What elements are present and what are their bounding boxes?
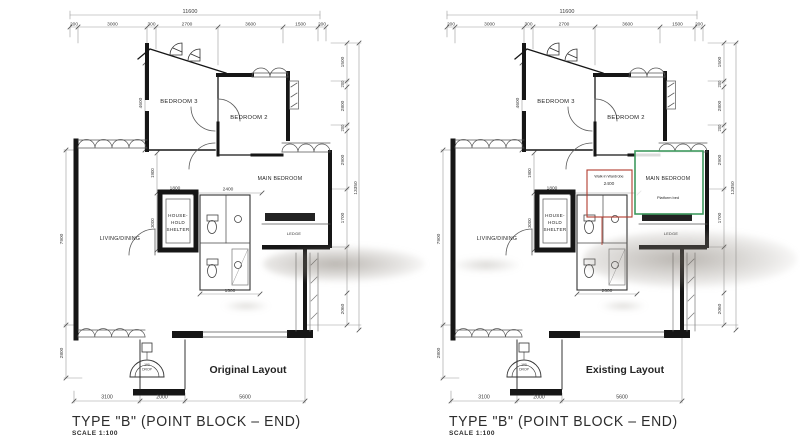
floor-plan-existing: Walk-in Wardrobe Platform bed 11600 200 …: [425, 3, 743, 415]
dim-bottom: 5600: [616, 395, 628, 401]
dim-right: 1700: [717, 212, 723, 223]
dim-overall-height: 13350: [353, 181, 359, 195]
room-label-ledge: LEDGE: [287, 232, 302, 236]
dim-top: 200: [70, 22, 78, 28]
dim-right: 2800: [340, 100, 346, 111]
plan-scale-existing: SCALE 1:100: [449, 430, 495, 437]
drop-note: DROP: [142, 368, 153, 372]
existing-annotations: Walk-in Wardrobe Platform bed: [587, 151, 703, 245]
platform-bed-label: Platform bed: [657, 195, 679, 200]
dim-right: 1500: [717, 56, 723, 67]
floorplan-canvas: 11600 200 3000 300 2700 3600 1500 200 15…: [0, 0, 800, 443]
dim-bedroom3-height: 4600: [138, 97, 144, 108]
platform-bed-outline: [635, 151, 703, 214]
dim-right: 200: [717, 80, 722, 88]
room-label-shelter: HOUSE-: [545, 213, 565, 218]
dim-top: 300: [147, 22, 155, 28]
dim-top: 200: [447, 22, 455, 28]
floor-plan-existing-svg: Walk-in Wardrobe Platform bed 11600 200 …: [425, 3, 743, 415]
dim-right: 1700: [340, 212, 346, 223]
dim-top: 300: [524, 22, 532, 28]
dim-top: 2700: [559, 22, 570, 28]
plan-scale-original: SCALE 1:100: [72, 430, 118, 437]
dim-main-bedroom: 2400: [604, 181, 615, 187]
dim-right: 2060: [717, 303, 723, 314]
dim-shelter-width: 1800: [547, 186, 558, 192]
room-label-shelter: SHELTER: [544, 227, 567, 232]
dim-shelter-height: 3000: [150, 218, 155, 228]
dim-right: 2800: [717, 100, 723, 111]
dim-top: 1500: [672, 22, 683, 28]
room-label-main-bedroom: MAIN BEDROOM: [258, 176, 303, 182]
dim-kitchen: 1500: [225, 288, 236, 294]
room-label-bedroom3: BEDROOM 3: [537, 99, 575, 105]
dim-top: 200: [695, 22, 703, 28]
dim-bedroom3-height: 4600: [515, 97, 521, 108]
dim-bottom: 5600: [239, 395, 251, 401]
dim-top: 3600: [622, 22, 633, 28]
drop-note: DROP: [519, 368, 530, 372]
dim-shelter-width: 1800: [170, 186, 181, 192]
dim-right: 2060: [340, 303, 346, 314]
dim-left-lower: 2800: [59, 347, 65, 358]
dim-right: 200: [717, 124, 722, 132]
walk-in-wardrobe-label: Walk-in Wardrobe: [594, 175, 623, 179]
floor-plan-original-svg: 11600 200 3000 300 2700 3600 1500 200 15…: [48, 3, 366, 415]
room-label-shelter: HOUSE-: [168, 213, 188, 218]
layout-label-existing: Existing Layout: [586, 364, 665, 376]
room-label-ledge: LEDGE: [664, 232, 679, 236]
drop-note: 100: [144, 363, 150, 367]
room-label-living: LIVING/DINING: [477, 236, 518, 242]
room-label-shelter: HOLD: [171, 220, 185, 225]
dim-kitchen: 2600: [602, 288, 613, 294]
dim-bottom: 2000: [156, 395, 168, 401]
room-label-shelter: HOLD: [548, 220, 562, 225]
dim-main-bedroom: 2400: [223, 187, 234, 193]
dim-bottom: 2000: [533, 395, 545, 401]
layout-label-original: Original Layout: [209, 364, 287, 376]
dim-shelter-height: 3000: [527, 218, 532, 228]
dim-left-lower: 2800: [436, 347, 442, 358]
dim-top: 1500: [295, 22, 306, 28]
dim-bottom: 3100: [101, 395, 113, 401]
room-label-main-bedroom: MAIN BEDROOM: [646, 176, 691, 182]
dim-hall: 1900: [150, 168, 155, 178]
room-label-bedroom2: BEDROOM 2: [607, 115, 645, 121]
dim-right: 2900: [717, 154, 723, 165]
floor-plan-original: 11600 200 3000 300 2700 3600 1500 200 15…: [48, 3, 366, 415]
dim-right: 200: [340, 80, 345, 88]
dim-hall: 1900: [527, 168, 532, 178]
dim-top: 200: [318, 22, 326, 28]
dim-overall-width: 11600: [560, 9, 575, 15]
room-label-living: LIVING/DINING: [100, 236, 141, 242]
dim-left-upper: 7900: [59, 233, 65, 244]
room-label-bedroom2: BEDROOM 2: [230, 115, 268, 121]
dim-left-upper: 7900: [436, 233, 442, 244]
dim-top: 3600: [245, 22, 256, 28]
room-label-shelter: SHELTER: [167, 227, 190, 232]
dim-top: 2700: [182, 22, 193, 28]
plan-title-original: TYPE "B" (POINT BLOCK – END): [72, 412, 301, 429]
dim-right: 2900: [340, 154, 346, 165]
dim-overall-width: 11600: [183, 9, 198, 15]
room-label-bedroom3: BEDROOM 3: [160, 99, 198, 105]
dim-right: 1500: [340, 56, 346, 67]
plan-title-existing: TYPE "B" (POINT BLOCK – END): [449, 412, 678, 429]
dim-top: 3000: [107, 22, 118, 28]
drop-note: 100: [521, 363, 527, 367]
dim-top: 3000: [484, 22, 495, 28]
dim-overall-height: 13350: [730, 181, 736, 195]
dim-bottom: 3100: [478, 395, 490, 401]
dim-right: 200: [340, 124, 345, 132]
